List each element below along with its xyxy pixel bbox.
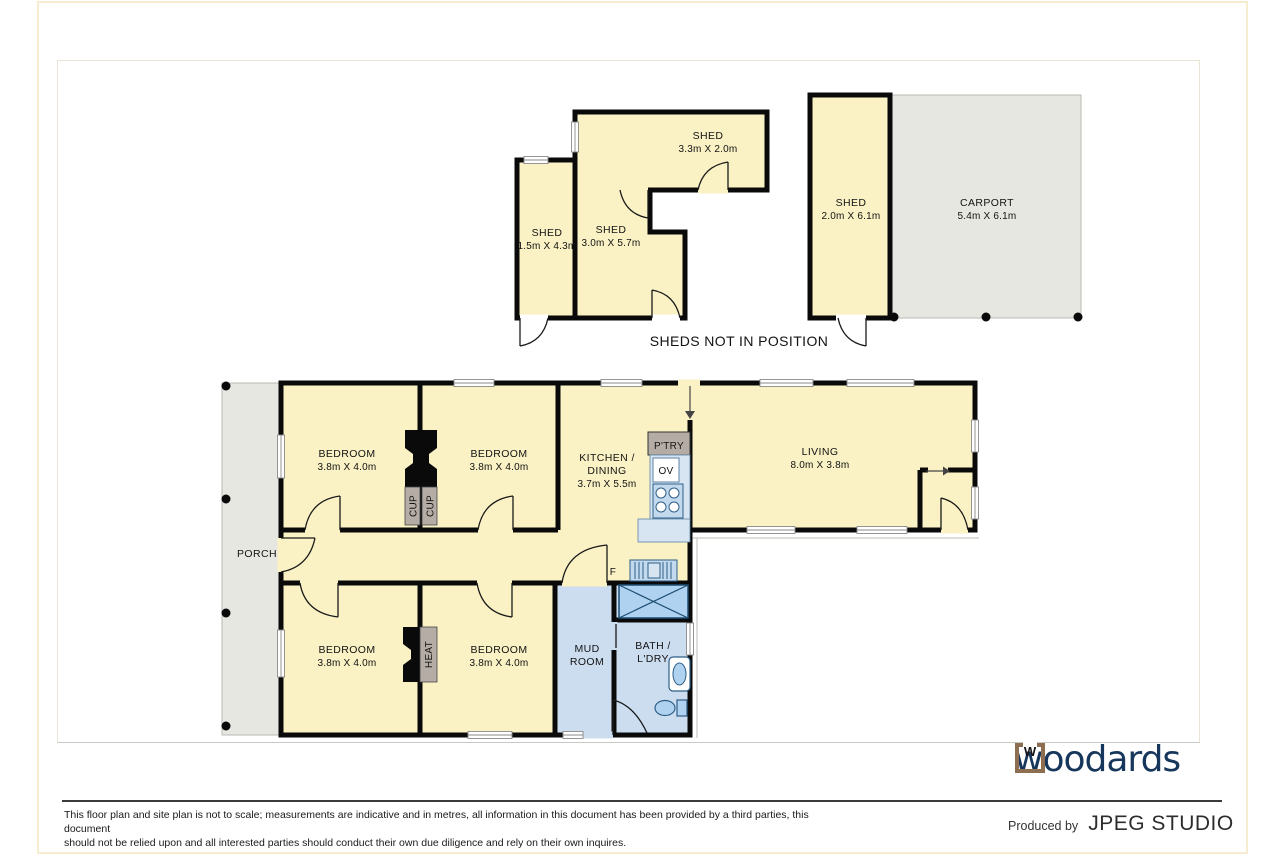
- disclaimer-line-1: This floor plan and site plan is not to …: [64, 808, 854, 836]
- pantry-label: P'TRY: [654, 441, 684, 452]
- roof-overhang-lines: [692, 538, 979, 738]
- shed-center-dims: 3.0m X 5.7m: [582, 238, 641, 249]
- carport-post: [890, 313, 899, 322]
- kitchen-dims: 3.7m X 5.5m: [578, 479, 637, 490]
- produced-by-credit: Produced by JPEG STUDIO: [1008, 812, 1234, 836]
- living-dims: 8.0m X 3.8m: [791, 460, 850, 471]
- produced-by-label: Produced by: [1008, 819, 1078, 833]
- disclaimer-line-2: should not be relied upon and all intere…: [64, 836, 854, 850]
- porch-post: [222, 382, 231, 391]
- shed-carport-label: SHED: [836, 197, 867, 209]
- woodards-mark-letter: W: [1024, 744, 1037, 759]
- sheds-note: SHEDS NOT IN POSITION: [650, 333, 829, 349]
- shed-top-dims: 3.3m X 2.0m: [679, 144, 738, 155]
- kitchen-label-line2: DINING: [587, 465, 626, 477]
- shed-center-label: SHED: [596, 224, 627, 236]
- kitchen-counter: [638, 519, 690, 542]
- carport-label: CARPORT: [960, 197, 1014, 209]
- toilet: [655, 700, 687, 716]
- porch-post: [222, 609, 231, 618]
- bath-label-line1: BATH /: [635, 640, 670, 652]
- porch-label: PORCH: [237, 548, 277, 560]
- heater-label: HEAT: [424, 641, 435, 668]
- shower: [619, 585, 688, 618]
- living-label: LIVING: [802, 446, 839, 458]
- bedroom-2-dims: 3.8m X 4.0m: [470, 462, 529, 473]
- footer-divider: [62, 800, 1222, 802]
- woodards-logo: woodards W: [1014, 742, 1180, 778]
- bedroom-1-dims: 3.8m X 4.0m: [318, 462, 377, 473]
- cupboard-label: CUP: [426, 495, 437, 517]
- mud-room-label-line2: ROOM: [570, 656, 604, 668]
- carport-post: [982, 313, 991, 322]
- disclaimer-text: This floor plan and site plan is not to …: [64, 808, 854, 850]
- fridge-label: F: [610, 567, 616, 578]
- floor-plan: CUP CUP HEAT: [0, 0, 1284, 856]
- studio-name: JPEG STUDIO: [1088, 812, 1234, 836]
- bath-label-line2: L'DRY: [637, 653, 669, 665]
- kitchen-label-line1: KITCHEN /: [579, 452, 635, 464]
- oven-label: OV: [658, 466, 673, 477]
- shed-top-label: SHED: [693, 130, 724, 142]
- bedroom-2-label: BEDROOM: [470, 448, 527, 460]
- shed-carport-dims: 2.0m X 6.1m: [822, 211, 881, 222]
- bedroom-3-label: BEDROOM: [318, 644, 375, 656]
- porch-post: [222, 495, 231, 504]
- bedroom-3-dims: 3.8m X 4.0m: [318, 658, 377, 669]
- bedroom-1-label: BEDROOM: [318, 448, 375, 460]
- porch-post: [222, 722, 231, 731]
- shed-narrow-label: SHED: [532, 227, 563, 239]
- cupboard-label: CUP: [409, 495, 420, 517]
- laundry-appliance: [630, 560, 677, 581]
- carport-post: [1074, 313, 1083, 322]
- shed-narrow-dims: 1.5m X 4.3m: [518, 241, 577, 252]
- basin: [669, 657, 690, 691]
- cooktop: [653, 484, 683, 518]
- mud-room-label-line1: MUD: [574, 643, 599, 655]
- woodards-logo-mark-icon: W: [1014, 742, 1046, 774]
- bedroom-4-label: BEDROOM: [470, 644, 527, 656]
- carport-dims: 5.4m X 6.1m: [958, 211, 1017, 222]
- bedroom-4-dims: 3.8m X 4.0m: [470, 658, 529, 669]
